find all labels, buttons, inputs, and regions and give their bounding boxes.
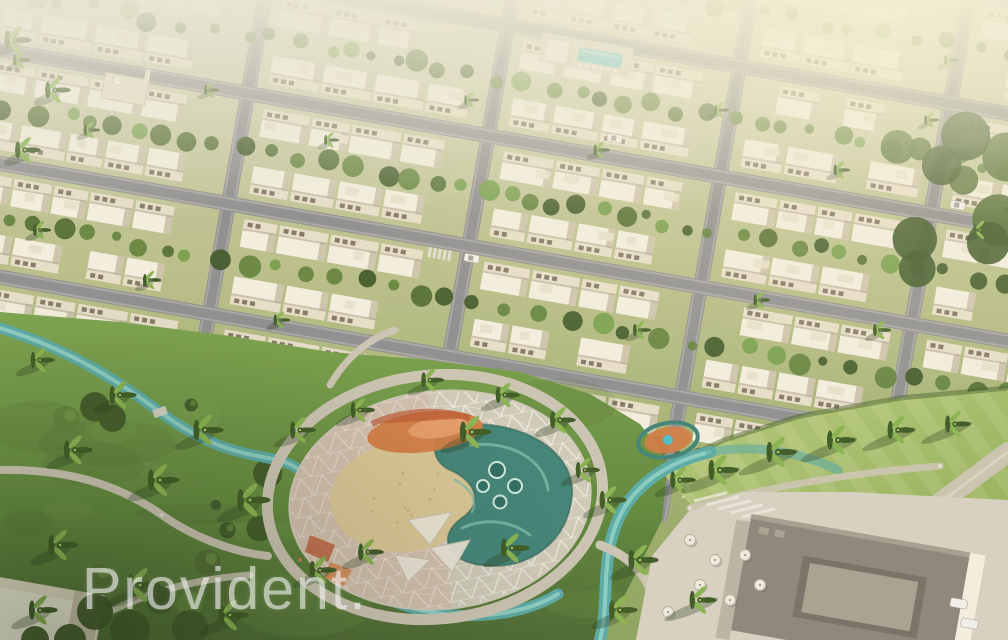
aerial-community-render: Provident. <box>0 0 1008 640</box>
atmosphere-haze <box>0 0 1008 640</box>
aerial-render-canvas <box>0 0 1008 640</box>
